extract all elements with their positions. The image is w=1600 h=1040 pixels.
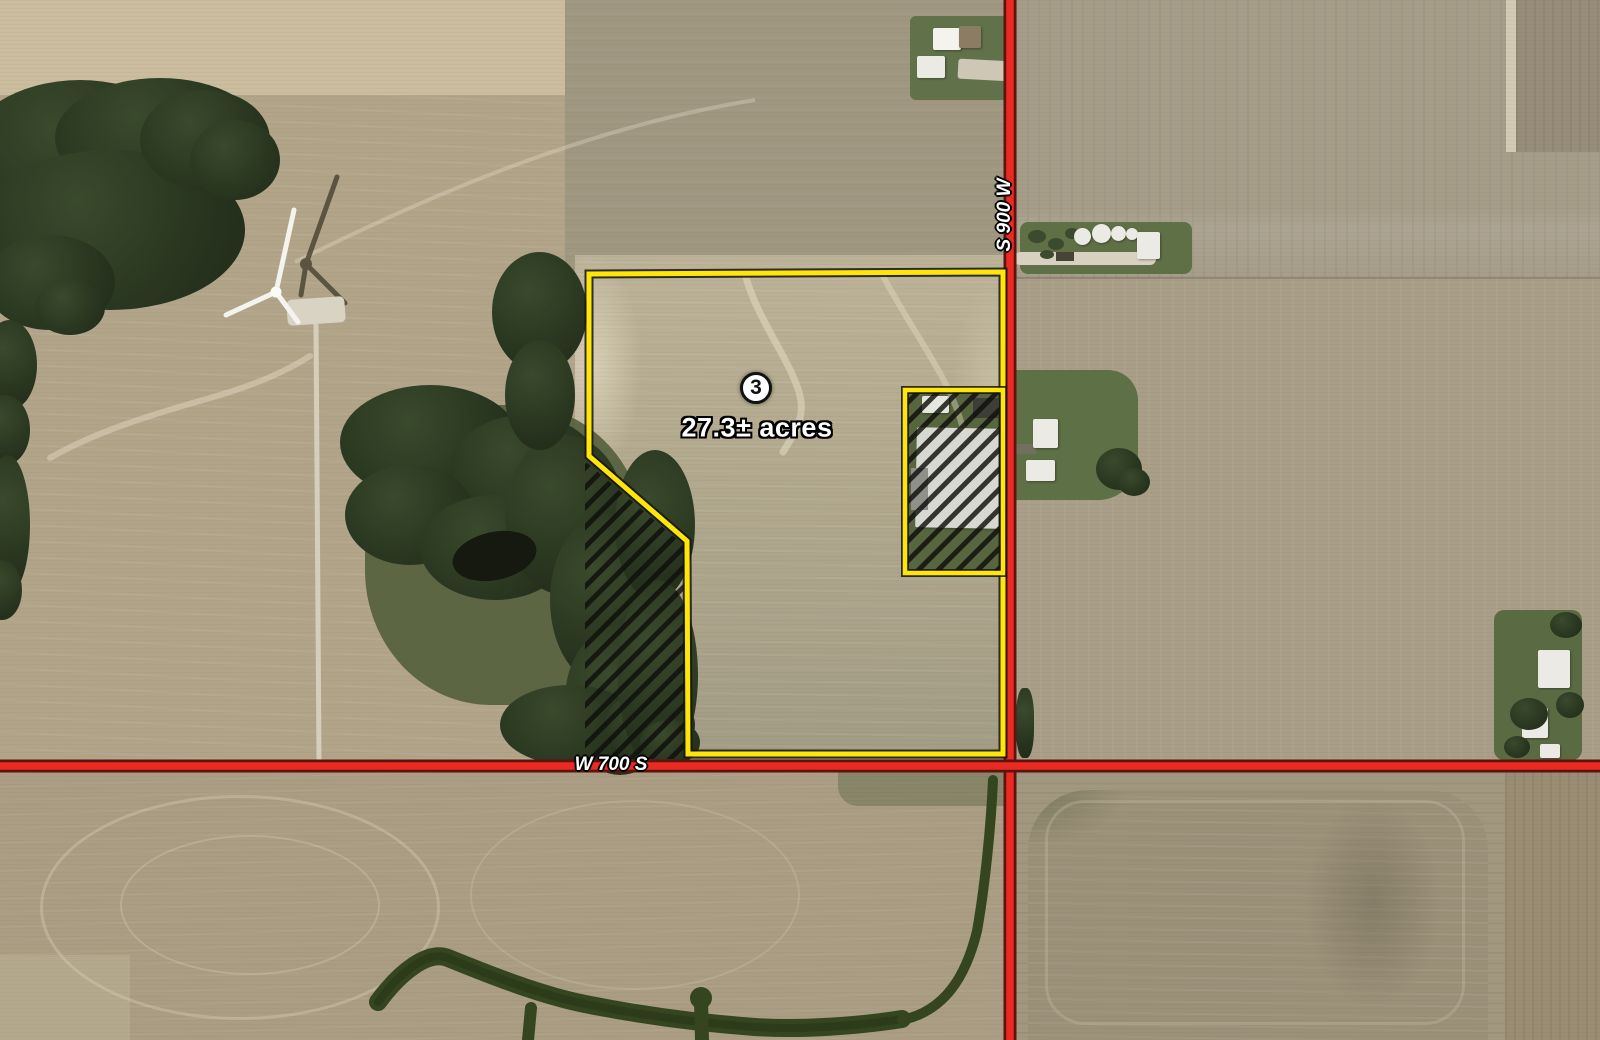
road-label-w700s: W 700 S (575, 754, 648, 776)
turbine-blades (226, 210, 298, 322)
excluded-farmstead-hatch (905, 390, 1003, 573)
grassed-waterway (378, 780, 993, 1040)
tract-number: 3 (750, 376, 762, 400)
turbine-access-road (316, 324, 319, 760)
wind-turbine (226, 177, 346, 760)
excluded-wooded-strip-hatch (585, 461, 687, 759)
field-track (50, 356, 310, 458)
tract-acreage-label: 27.3± acres (682, 413, 833, 444)
field-track (295, 100, 755, 262)
tract-number-badge: 3 (740, 372, 772, 404)
aerial-map-canvas[interactable]: 3 27.3± acres W 700 S S 900 W (0, 0, 1600, 1040)
map-overlay (0, 0, 1600, 1040)
road-label-s900w: S 900 W (994, 179, 1016, 252)
